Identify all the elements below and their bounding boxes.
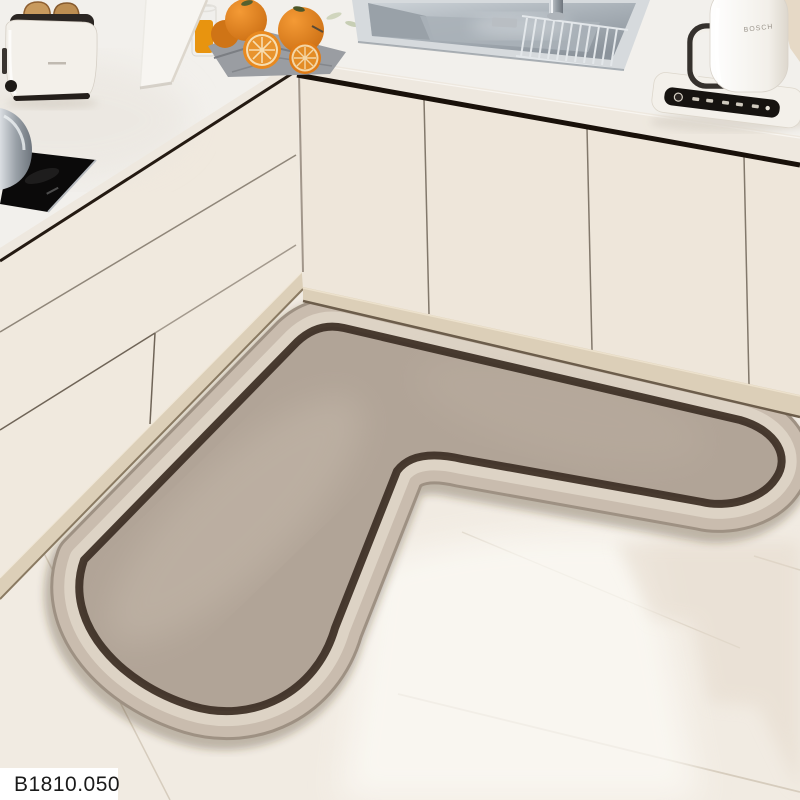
kettle-body	[710, 0, 788, 92]
product-code-label: B1810.050	[0, 768, 120, 800]
kitchen-photo: BOSCH B1810.050	[0, 0, 800, 800]
sink-logo-plate	[492, 17, 517, 27]
product-code-text: B1810.050	[14, 773, 120, 796]
toaster-logo	[48, 62, 66, 65]
kitchen-scene: BOSCH B1810.050	[0, 0, 800, 800]
orange-half	[243, 31, 281, 69]
faucet	[547, 0, 565, 20]
toaster	[2, 2, 98, 109]
orange-half-2	[289, 42, 321, 74]
